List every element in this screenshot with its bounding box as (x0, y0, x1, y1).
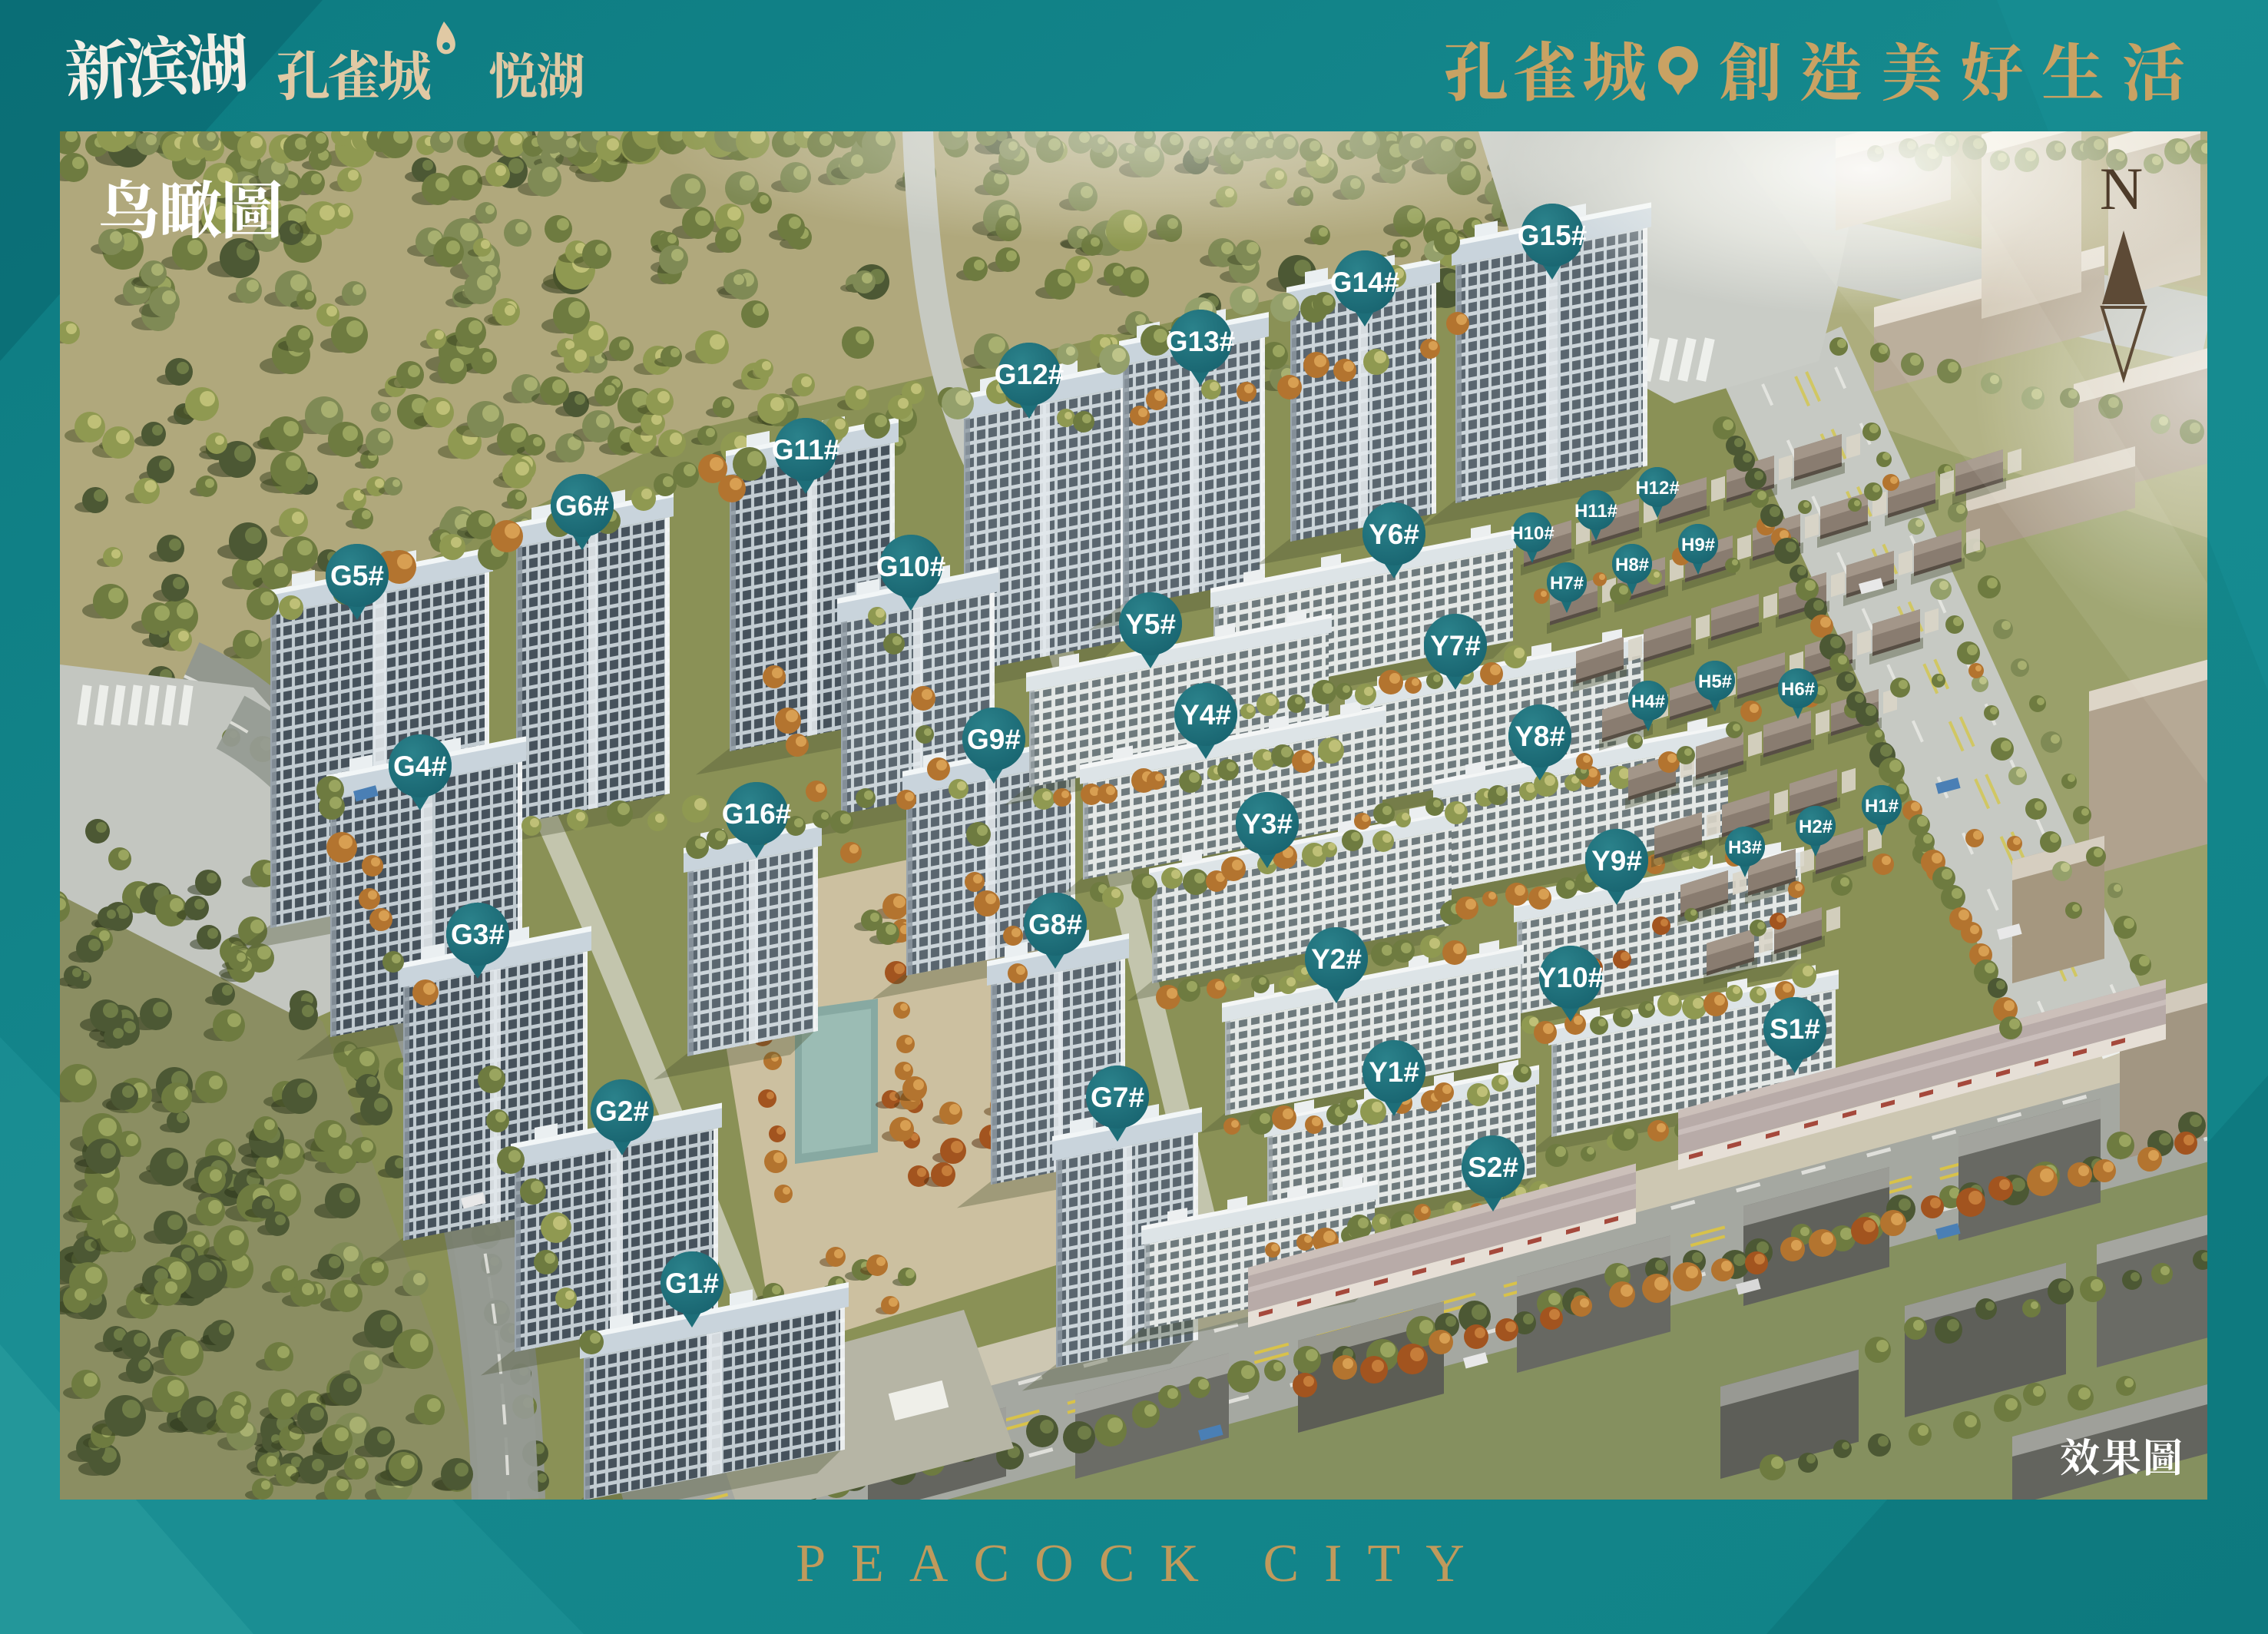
svg-text:Y3#: Y3# (1242, 808, 1293, 840)
svg-text:G15#: G15# (1518, 220, 1588, 251)
svg-text:H2#: H2# (1799, 817, 1833, 837)
svg-text:G2#: G2# (595, 1095, 649, 1127)
svg-text:G16#: G16# (722, 798, 792, 830)
svg-text:H8#: H8# (1615, 555, 1649, 575)
svg-text:G6#: G6# (555, 490, 609, 522)
svg-text:G7#: G7# (1091, 1082, 1144, 1113)
svg-text:G5#: G5# (330, 560, 384, 592)
svg-text:Y7#: Y7# (1430, 630, 1481, 661)
svg-text:G12#: G12# (995, 359, 1064, 390)
svg-text:H10#: H10# (1510, 523, 1554, 544)
svg-text:G3#: G3# (451, 919, 505, 950)
svg-text:G1#: G1# (665, 1268, 719, 1299)
svg-text:G10#: G10# (876, 551, 946, 582)
svg-text:H1#: H1# (1865, 796, 1899, 817)
svg-text:N: N (2100, 155, 2143, 222)
svg-text:Y9#: Y9# (1591, 845, 1642, 877)
svg-text:H3#: H3# (1728, 837, 1762, 858)
svg-text:Y5#: Y5# (1125, 608, 1176, 640)
svg-text:H12#: H12# (1635, 478, 1679, 499)
svg-text:G11#: G11# (772, 434, 839, 466)
svg-text:G14#: G14# (1330, 267, 1400, 298)
svg-text:S1#: S1# (1770, 1013, 1820, 1045)
svg-text:H6#: H6# (1781, 679, 1815, 700)
svg-text:H4#: H4# (1631, 691, 1665, 712)
svg-text:G13#: G13# (1166, 326, 1236, 357)
svg-text:H7#: H7# (1550, 573, 1584, 594)
svg-text:Y8#: Y8# (1515, 721, 1565, 752)
svg-text:Y2#: Y2# (1311, 943, 1362, 975)
svg-text:PEACOCK CITY: PEACOCK CITY (796, 1534, 1490, 1593)
svg-text:G9#: G9# (967, 724, 1021, 755)
svg-text:Y1#: Y1# (1369, 1056, 1419, 1088)
svg-text:H11#: H11# (1574, 501, 1617, 522)
svg-text:G8#: G8# (1028, 909, 1082, 940)
svg-text:Y4#: Y4# (1180, 699, 1231, 731)
svg-text:H9#: H9# (1681, 535, 1715, 555)
svg-text:Y6#: Y6# (1369, 519, 1419, 550)
svg-text:S2#: S2# (1468, 1152, 1518, 1183)
svg-text:G4#: G4# (393, 751, 447, 782)
svg-text:Y10#: Y10# (1538, 962, 1604, 993)
svg-text:H5#: H5# (1698, 671, 1732, 692)
